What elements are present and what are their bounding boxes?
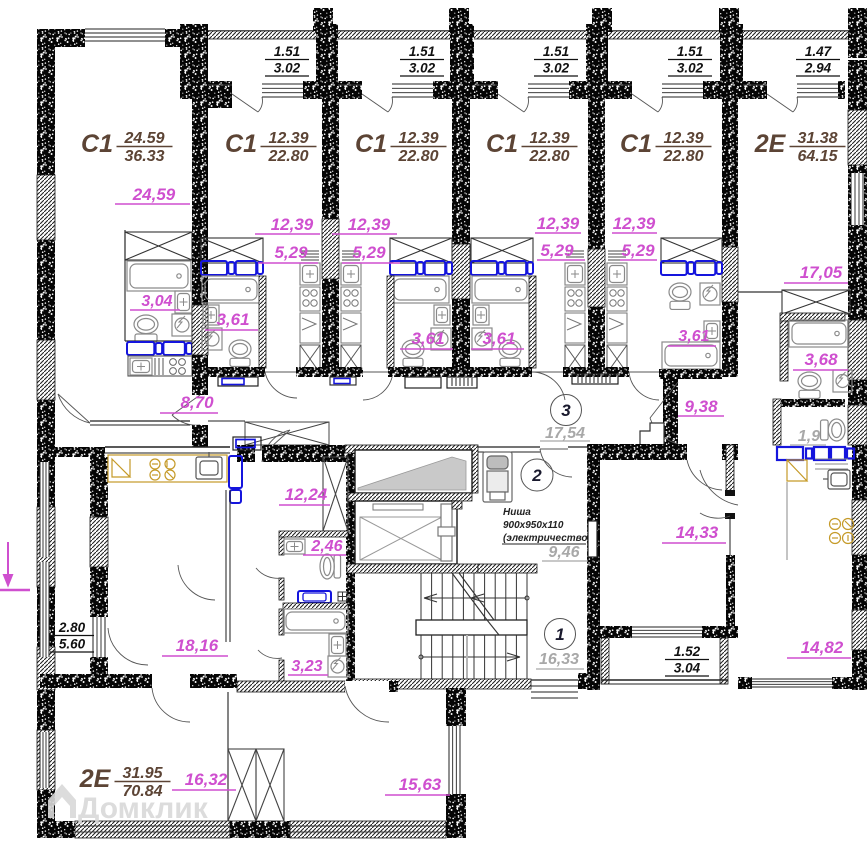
svg-text:2E: 2E bbox=[754, 130, 787, 158]
svg-text:12,39: 12,39 bbox=[348, 215, 391, 234]
svg-text:3,23: 3,23 bbox=[291, 658, 322, 675]
svg-text:C1: C1 bbox=[225, 130, 257, 158]
svg-text:1.47: 1.47 bbox=[805, 44, 833, 59]
svg-text:C1: C1 bbox=[486, 130, 518, 158]
svg-text:2E: 2E bbox=[79, 765, 112, 793]
svg-text:22.80: 22.80 bbox=[662, 148, 703, 165]
svg-text:(электричество): (электричество) bbox=[503, 533, 592, 544]
svg-text:12,39: 12,39 bbox=[613, 214, 656, 233]
svg-text:14,33: 14,33 bbox=[676, 523, 719, 542]
svg-text:15,63: 15,63 bbox=[399, 775, 442, 794]
svg-text:3,61: 3,61 bbox=[216, 310, 249, 329]
svg-text:22.80: 22.80 bbox=[528, 148, 569, 165]
svg-text:18,16: 18,16 bbox=[176, 636, 219, 655]
svg-text:14,82: 14,82 bbox=[801, 638, 844, 657]
svg-text:3.02: 3.02 bbox=[677, 61, 704, 76]
svg-text:5,29: 5,29 bbox=[540, 241, 574, 260]
svg-text:16,32: 16,32 bbox=[185, 770, 228, 789]
svg-text:12.39: 12.39 bbox=[268, 130, 308, 147]
svg-text:31.95: 31.95 bbox=[122, 765, 163, 782]
svg-text:12.39: 12.39 bbox=[663, 130, 703, 147]
svg-text:5.60: 5.60 bbox=[59, 637, 86, 652]
svg-text:24,59: 24,59 bbox=[132, 185, 176, 204]
svg-text:5,29: 5,29 bbox=[274, 243, 308, 262]
svg-text:2,46: 2,46 bbox=[310, 538, 342, 555]
svg-text:1.51: 1.51 bbox=[677, 44, 703, 59]
svg-text:36.33: 36.33 bbox=[124, 148, 164, 165]
svg-text:22.80: 22.80 bbox=[267, 148, 308, 165]
svg-text:900х950х110: 900х950х110 bbox=[503, 520, 564, 531]
svg-text:1.51: 1.51 bbox=[274, 44, 300, 59]
svg-text:64.15: 64.15 bbox=[797, 148, 838, 165]
svg-text:2.80: 2.80 bbox=[58, 620, 86, 635]
svg-text:1.51: 1.51 bbox=[543, 44, 569, 59]
svg-text:3.02: 3.02 bbox=[543, 61, 570, 76]
svg-text:22.80: 22.80 bbox=[397, 148, 438, 165]
svg-text:17,54: 17,54 bbox=[545, 425, 585, 442]
svg-text:1.51: 1.51 bbox=[409, 44, 435, 59]
svg-text:12,39: 12,39 bbox=[271, 215, 314, 234]
svg-text:12,39: 12,39 bbox=[537, 214, 580, 233]
svg-text:5,29: 5,29 bbox=[352, 243, 386, 262]
svg-text:Домклик: Домклик bbox=[78, 792, 209, 825]
svg-text:12.39: 12.39 bbox=[398, 130, 438, 147]
svg-text:2.94: 2.94 bbox=[804, 61, 832, 76]
svg-text:3.02: 3.02 bbox=[274, 61, 301, 76]
svg-text:9,46: 9,46 bbox=[548, 544, 579, 561]
svg-text:16,33: 16,33 bbox=[539, 651, 579, 668]
svg-text:31.38: 31.38 bbox=[797, 130, 837, 147]
svg-text:1,9: 1,9 bbox=[798, 428, 820, 445]
svg-text:17,05: 17,05 bbox=[800, 263, 843, 282]
svg-text:3.02: 3.02 bbox=[409, 61, 436, 76]
svg-text:C1: C1 bbox=[355, 130, 387, 158]
svg-text:2: 2 bbox=[531, 466, 542, 485]
svg-text:3: 3 bbox=[561, 401, 571, 420]
svg-text:9,38: 9,38 bbox=[684, 397, 718, 416]
svg-text:3.04: 3.04 bbox=[674, 661, 701, 676]
svg-text:3,61: 3,61 bbox=[411, 329, 444, 348]
svg-text:12,24: 12,24 bbox=[285, 485, 328, 504]
svg-text:3,68: 3,68 bbox=[804, 350, 838, 369]
svg-text:3,61: 3,61 bbox=[678, 328, 709, 345]
svg-text:C1: C1 bbox=[81, 130, 113, 158]
svg-text:24.59: 24.59 bbox=[123, 130, 164, 147]
svg-text:1.52: 1.52 bbox=[674, 644, 701, 659]
svg-text:C1: C1 bbox=[620, 130, 652, 158]
svg-text:Ниша: Ниша bbox=[503, 507, 531, 518]
svg-text:8,70: 8,70 bbox=[180, 393, 214, 412]
svg-text:3,61: 3,61 bbox=[482, 329, 515, 348]
svg-text:5,29: 5,29 bbox=[621, 241, 655, 260]
svg-text:3,04: 3,04 bbox=[141, 293, 172, 310]
svg-text:12.39: 12.39 bbox=[529, 130, 569, 147]
svg-text:1: 1 bbox=[555, 625, 564, 644]
